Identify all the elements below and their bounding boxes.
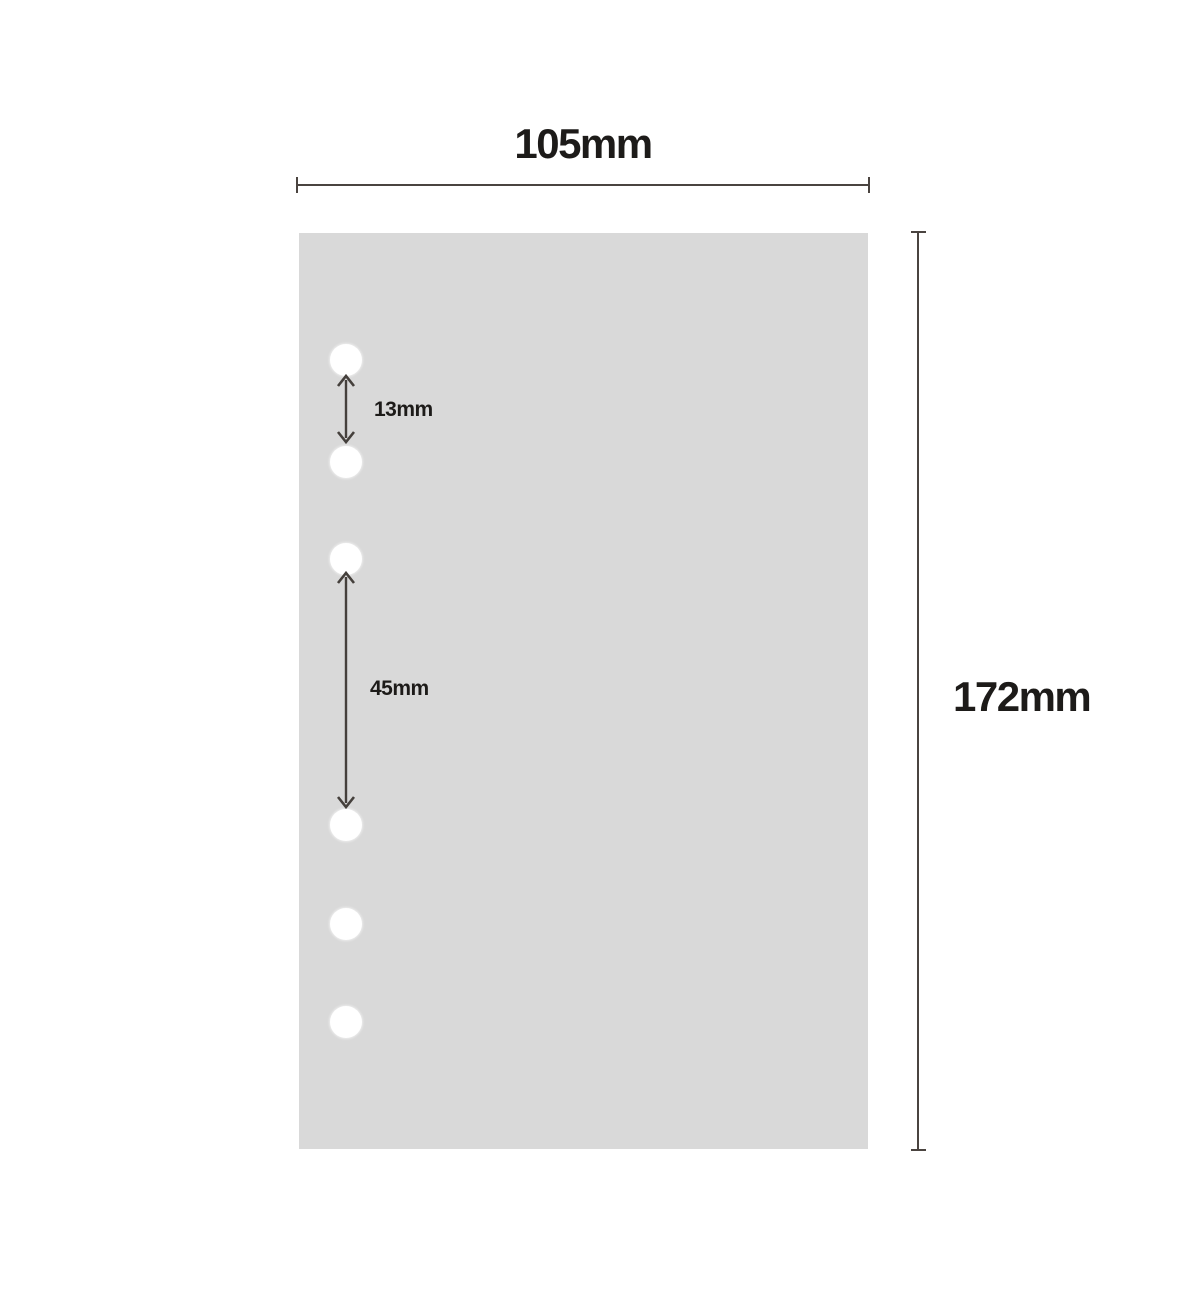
hole-gap-small-label: 13mm: [374, 399, 433, 420]
height-dimension-end-tick: [911, 1149, 926, 1151]
hole-gap-large-label: 45mm: [370, 678, 429, 699]
double-arrow-45mm-icon: [333, 570, 359, 810]
double-arrow-13mm-icon: [333, 373, 359, 445]
punch-hole-5: [330, 908, 362, 940]
height-dimension-start-tick: [911, 231, 926, 233]
punch-hole-2: [330, 446, 362, 478]
sheet-height-label: 172mm: [953, 676, 1090, 718]
paper-sheet: 13mm 45mm: [299, 233, 868, 1149]
width-dimension-line: [296, 184, 870, 186]
punch-hole-4: [330, 809, 362, 841]
width-dimension-start-tick: [296, 177, 298, 193]
punch-hole-6: [330, 1006, 362, 1038]
punch-hole-1: [330, 344, 362, 376]
width-dimension-end-tick: [868, 177, 870, 193]
sheet-width-label: 105mm: [296, 123, 870, 165]
paper-dimension-diagram: 105mm 172mm 13mm 45mm: [0, 0, 1200, 1293]
height-dimension-line: [917, 231, 919, 1151]
